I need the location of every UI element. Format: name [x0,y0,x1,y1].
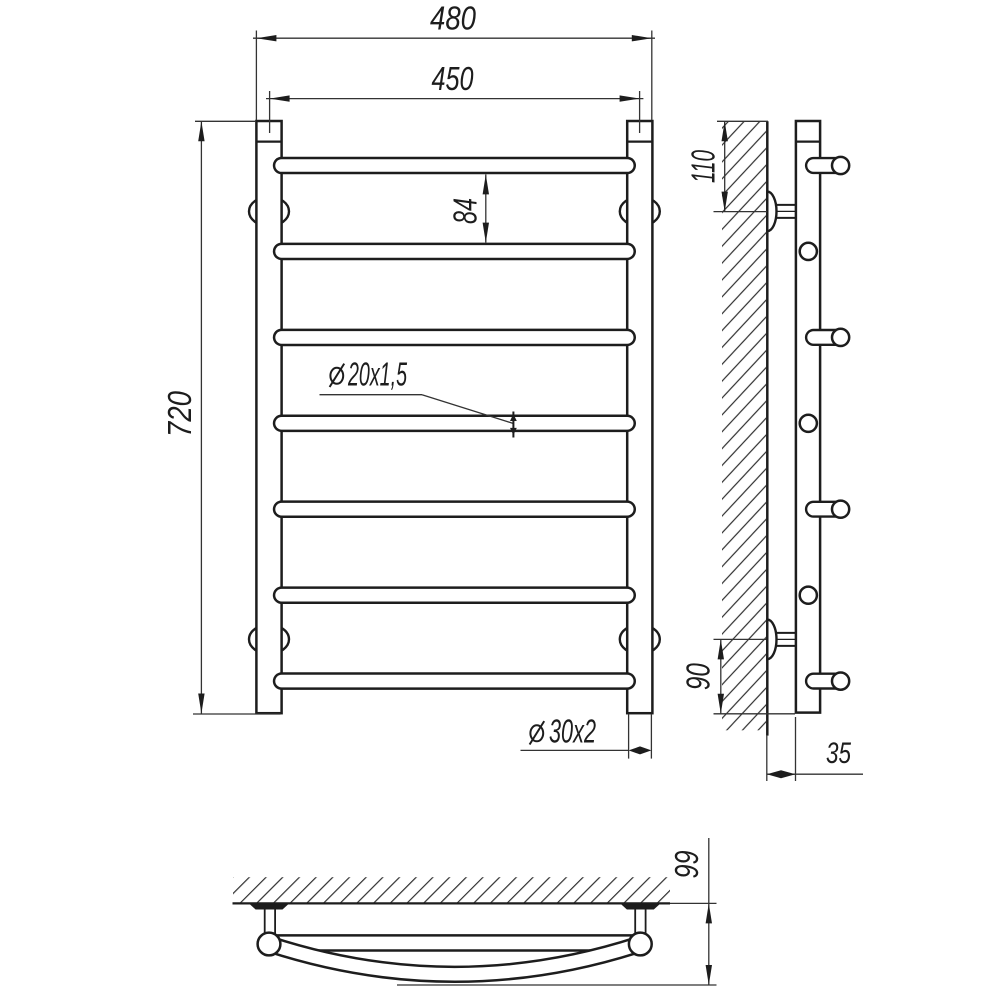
svg-text:450: 450 [432,60,474,97]
svg-text:35: 35 [826,737,851,770]
svg-text:110: 110 [685,150,722,183]
svg-text:30x2: 30x2 [549,713,596,750]
svg-text:480: 480 [430,0,477,37]
svg-text:720: 720 [161,390,198,437]
svg-text:90: 90 [680,663,717,690]
svg-text:84: 84 [447,198,484,224]
svg-text:99: 99 [668,851,705,879]
svg-text:20x1,5: 20x1,5 [347,356,407,393]
